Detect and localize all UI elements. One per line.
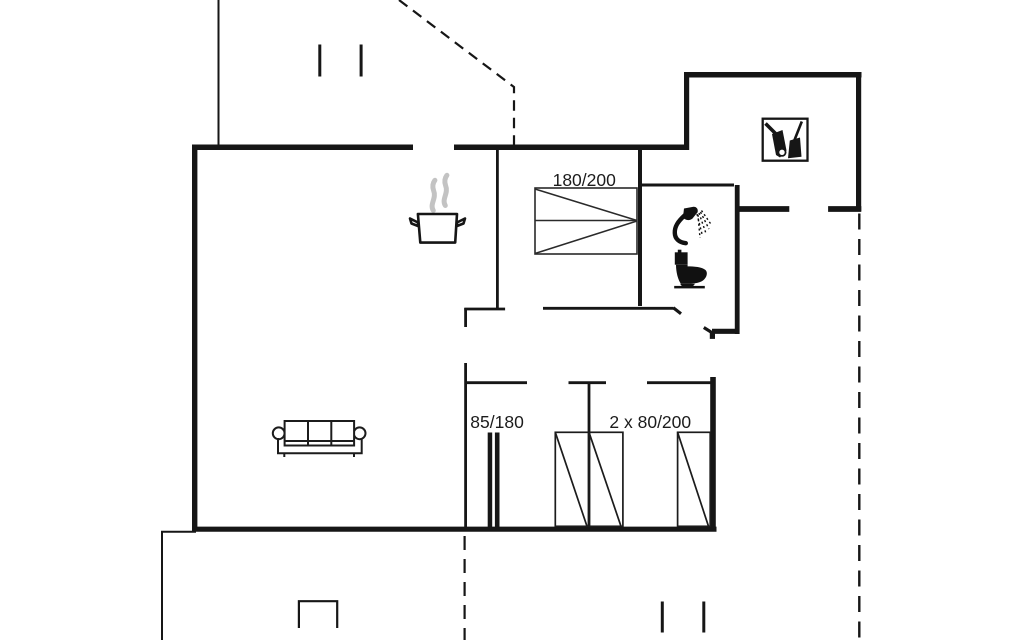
svg-text:85/180: 85/180 [470,412,524,432]
svg-text:2 x 80/200: 2 x 80/200 [609,412,691,432]
svg-text:180/200: 180/200 [553,170,617,190]
